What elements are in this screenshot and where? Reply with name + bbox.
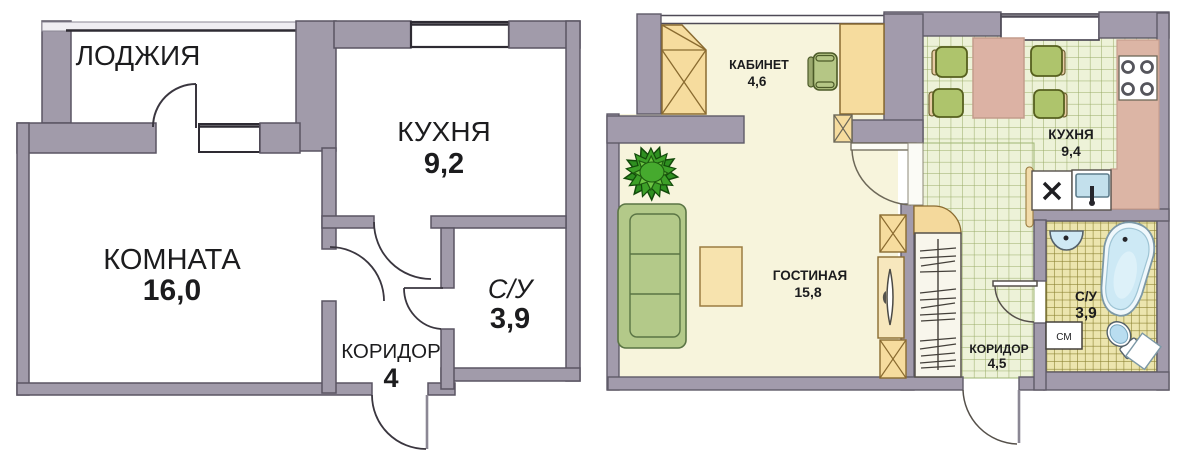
svg-text:4,5: 4,5: [988, 356, 1007, 371]
svg-text:КОРИДОР: КОРИДОР: [969, 342, 1028, 356]
svg-text:3,9: 3,9: [1075, 305, 1097, 322]
svg-text:С/У: С/У: [1075, 289, 1098, 304]
svg-text:КАБИНЕТ: КАБИНЕТ: [729, 58, 789, 72]
svg-text:ЛОДЖИЯ: ЛОДЖИЯ: [76, 40, 201, 71]
svg-text:КУХНЯ: КУХНЯ: [1048, 127, 1093, 142]
svg-text:4: 4: [383, 363, 398, 393]
svg-text:КУХНЯ: КУХНЯ: [397, 116, 491, 147]
svg-text:16,0: 16,0: [143, 274, 201, 307]
svg-text:ГОСТИНАЯ: ГОСТИНАЯ: [773, 268, 848, 283]
svg-text:9,4: 9,4: [1061, 143, 1081, 159]
svg-text:3,9: 3,9: [490, 303, 530, 335]
svg-text:С/У: С/У: [488, 274, 535, 304]
svg-text:КОМНАТА: КОМНАТА: [103, 244, 241, 276]
svg-text:15,8: 15,8: [794, 284, 821, 300]
svg-text:9,2: 9,2: [424, 148, 464, 180]
svg-text:СМ: СМ: [1056, 332, 1071, 343]
svg-text:4,6: 4,6: [748, 74, 767, 89]
svg-text:КОРИДОР: КОРИДОР: [341, 340, 441, 363]
